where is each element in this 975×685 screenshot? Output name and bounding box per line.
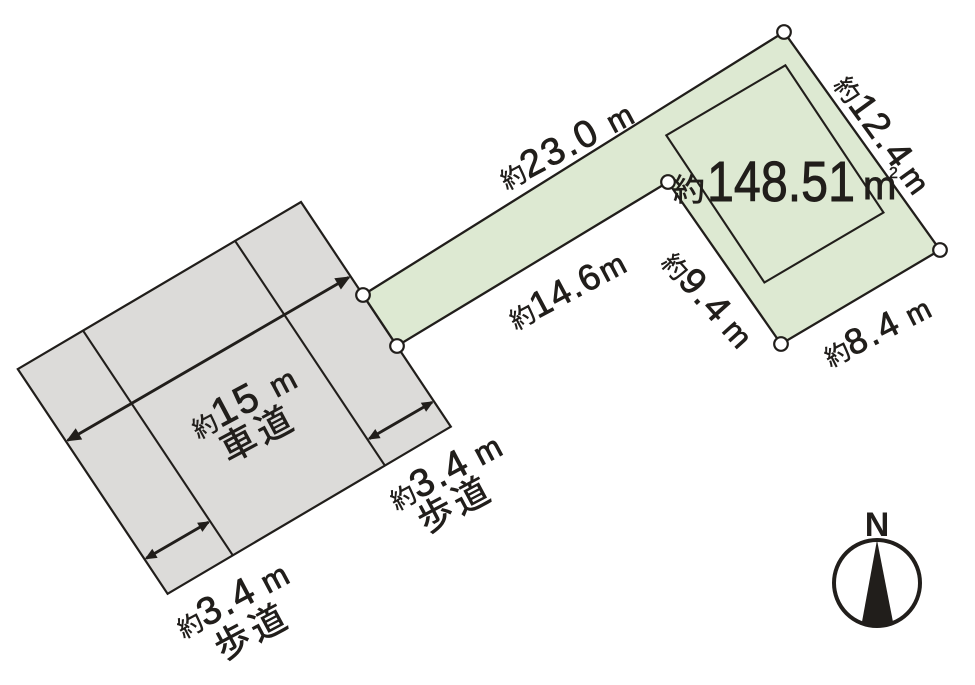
- svg-text:2: 2: [889, 165, 898, 182]
- svg-text:N: N: [865, 506, 890, 544]
- svg-text:148.51: 148.51: [707, 150, 855, 214]
